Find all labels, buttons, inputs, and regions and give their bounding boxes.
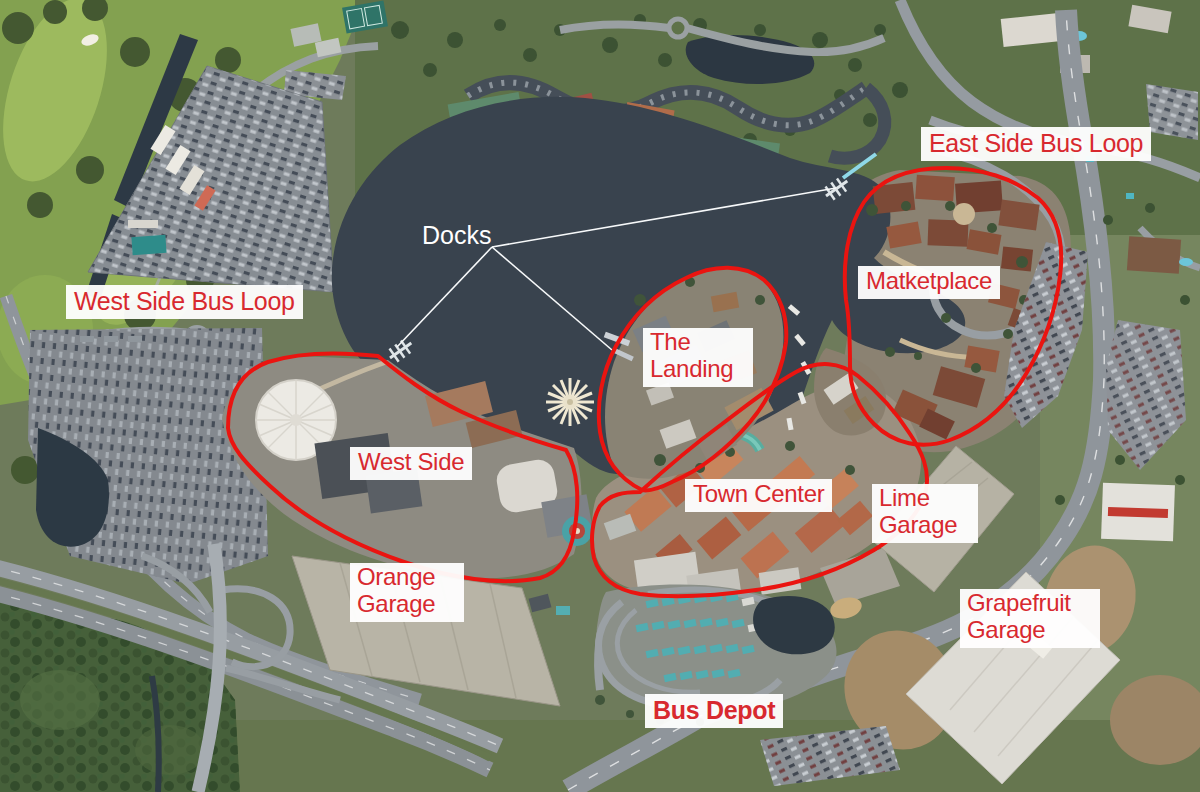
star-fountain	[546, 378, 594, 426]
label-docks: Docks	[422, 221, 491, 249]
label-west-side: West Side	[350, 447, 472, 480]
label-grapefruit-garage: Grapefruit Garage	[960, 589, 1100, 648]
label-the-landing: The Landing	[643, 328, 753, 387]
label-orange-garage: Orange Garage	[350, 563, 464, 622]
label-east-side-bus-loop: East Side Bus Loop	[921, 127, 1151, 161]
label-bus-depot: Bus Depot	[645, 694, 783, 728]
annotated-satellite-map: East Side Bus Loop West Side Bus Loop Ma…	[0, 0, 1200, 792]
label-marketplace: Matketplace	[858, 266, 1000, 299]
satellite-basemap	[0, 0, 1200, 792]
label-town-center: Town Center	[685, 479, 832, 512]
label-lime-garage: Lime Garage	[872, 484, 978, 543]
label-west-side-bus-loop: West Side Bus Loop	[66, 285, 303, 319]
